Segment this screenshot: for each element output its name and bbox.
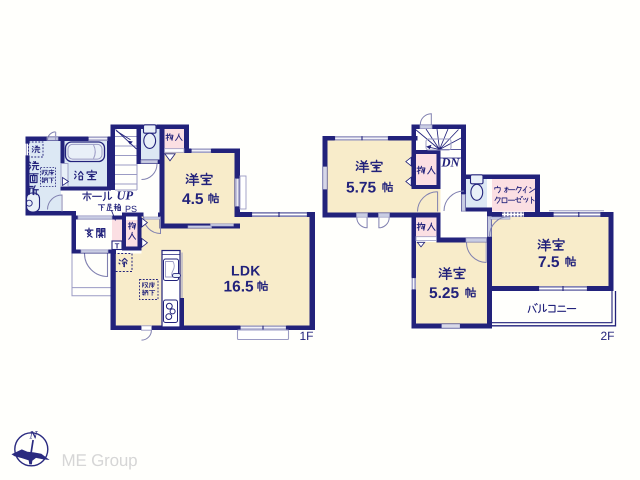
svg-text:16.5: 16.5 [224,279,255,296]
svg-text:T: T [115,241,120,250]
svg-text:7.5: 7.5 [538,254,560,271]
svg-text:5.25: 5.25 [429,285,460,302]
svg-text:ME Group: ME Group [62,451,138,470]
svg-text:PS: PS [125,204,137,214]
svg-text:LDK: LDK [231,263,261,279]
svg-text:N: N [29,430,39,442]
svg-text:2F: 2F [601,329,615,343]
svg-text:5.75: 5.75 [346,180,377,197]
svg-text:UP: UP [117,189,134,203]
svg-text:1F: 1F [300,329,314,343]
svg-text:4.5: 4.5 [182,191,204,208]
svg-text:DN: DN [441,156,461,170]
